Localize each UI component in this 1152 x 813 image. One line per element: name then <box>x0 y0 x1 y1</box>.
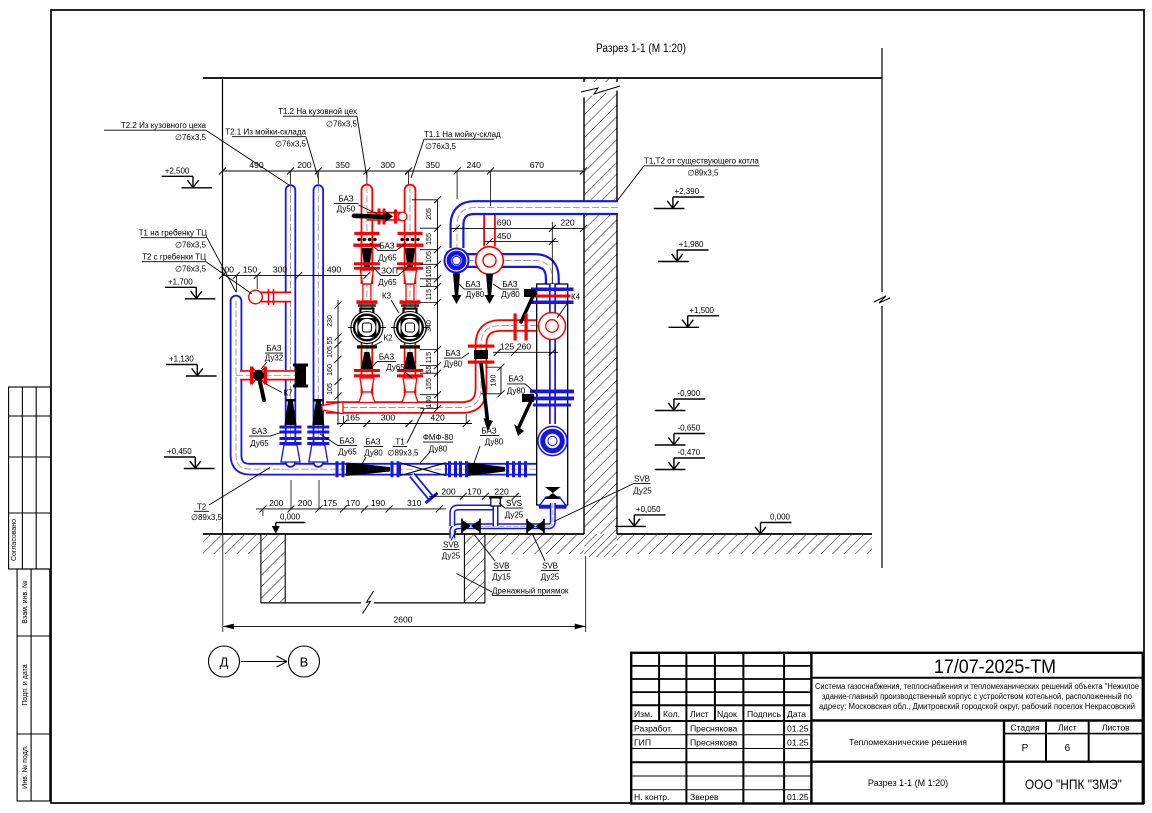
svg-text:БАЗ: БАЗ <box>379 242 394 251</box>
svg-text:Ду80: Ду80 <box>485 438 504 447</box>
svg-text:Ду65: Ду65 <box>338 448 357 457</box>
svg-text:Дата: Дата <box>787 709 806 719</box>
svg-text:Система газоснабжения, теплосн: Система газоснабжения, теплоснабжения и … <box>815 682 1140 691</box>
svg-text:К2: К2 <box>383 334 393 343</box>
svg-text:240: 240 <box>467 160 482 170</box>
svg-text:SVB: SVB <box>443 541 459 550</box>
svg-text:∅76x3,5: ∅76x3,5 <box>425 142 457 151</box>
svg-text:Подпись: Подпись <box>747 709 782 719</box>
svg-text:Ду25: Ду25 <box>633 487 652 496</box>
svg-text:+1,130: +1,130 <box>169 355 194 364</box>
svg-text:55: 55 <box>327 337 334 345</box>
svg-text:310: 310 <box>407 498 422 508</box>
svg-text:-0,900: -0,900 <box>678 389 701 398</box>
svg-text:Кол.: Кол. <box>663 709 680 719</box>
svg-text:Ду25: Ду25 <box>442 552 461 561</box>
svg-text:Изм.: Изм. <box>634 709 652 719</box>
svg-text:Ду80: Ду80 <box>364 449 383 458</box>
svg-text:165: 165 <box>346 413 361 423</box>
svg-text:Ду32: Ду32 <box>265 354 284 363</box>
svg-text:350: 350 <box>426 160 441 170</box>
svg-text:125: 125 <box>500 342 515 352</box>
svg-text:Тепломеханические решения: Тепломеханические решения <box>849 737 967 747</box>
svg-text:+2,500: +2,500 <box>165 166 190 175</box>
svg-text:∅76x3,5: ∅76x3,5 <box>326 120 358 129</box>
svg-text:БАЗ: БАЗ <box>508 375 523 384</box>
svg-text:200: 200 <box>441 487 456 497</box>
svg-text:Согласовано: Согласовано <box>11 519 18 561</box>
svg-text:∅89x3,5: ∅89x3,5 <box>388 449 420 458</box>
svg-text:-0,650: -0,650 <box>678 424 701 433</box>
svg-text:190: 190 <box>371 498 386 508</box>
svg-text:0,000: 0,000 <box>770 513 791 522</box>
svg-text:Р: Р <box>1022 743 1029 754</box>
svg-text:300: 300 <box>381 160 396 170</box>
svg-text:01.25: 01.25 <box>787 792 809 802</box>
svg-text:ГИП: ГИП <box>634 737 651 747</box>
svg-text:Ду80: Ду80 <box>507 387 526 396</box>
svg-text:155: 155 <box>426 233 433 245</box>
svg-text:+0,450: +0,450 <box>167 447 192 456</box>
svg-text:300: 300 <box>381 413 396 423</box>
svg-text:Н. контр.: Н. контр. <box>634 792 669 802</box>
svg-text:Подп. и дата: Подп. и дата <box>22 664 29 705</box>
svg-text:Ду65: Ду65 <box>386 363 405 372</box>
svg-text:200: 200 <box>269 498 284 508</box>
svg-text:105: 105 <box>327 346 334 358</box>
svg-text:+1,500: +1,500 <box>689 306 714 315</box>
svg-text:Ду80: Ду80 <box>429 445 448 454</box>
svg-text:SVB: SVB <box>542 562 558 571</box>
svg-text:Лист: Лист <box>690 709 709 719</box>
svg-text:0,000: 0,000 <box>280 512 301 521</box>
svg-text:170: 170 <box>467 487 482 497</box>
svg-text:Инв. № подл.: Инв. № подл. <box>22 745 29 789</box>
svg-text:01.25: 01.25 <box>787 737 809 747</box>
svg-text:Т1 на гребенку ТЦ: Т1 на гребенку ТЦ <box>139 229 207 238</box>
svg-text:Разработ.: Разработ. <box>634 724 673 734</box>
svg-text:Nдок: Nдок <box>717 709 737 719</box>
svg-text:Дренажный приямок: Дренажный приямок <box>492 587 569 596</box>
svg-text:55: 55 <box>426 279 433 287</box>
svg-text:300: 300 <box>273 265 288 275</box>
svg-text:Ду65: Ду65 <box>378 254 397 263</box>
svg-text:+1,980: +1,980 <box>679 240 704 249</box>
svg-text:490: 490 <box>327 265 342 275</box>
svg-text:105: 105 <box>426 251 433 263</box>
svg-text:155: 155 <box>426 378 433 390</box>
svg-text:105: 105 <box>426 266 433 278</box>
svg-text:ЗОП: ЗОП <box>381 267 398 276</box>
svg-text:Преснякова: Преснякова <box>690 737 738 747</box>
svg-text:170: 170 <box>346 498 361 508</box>
svg-text:∅76x3,5: ∅76x3,5 <box>175 241 207 250</box>
svg-text:SVS: SVS <box>506 499 522 508</box>
svg-text:ФМФ-80: ФМФ-80 <box>423 433 454 442</box>
svg-text:105: 105 <box>327 383 334 395</box>
svg-text:100: 100 <box>426 396 433 408</box>
svg-text:Ду25: Ду25 <box>505 511 524 520</box>
svg-text:Ду25: Ду25 <box>541 573 560 582</box>
svg-text:55: 55 <box>426 365 433 373</box>
svg-text:450: 450 <box>497 231 512 241</box>
svg-text:Зверев: Зверев <box>690 792 719 802</box>
svg-text:01.25: 01.25 <box>787 724 809 734</box>
svg-text:175: 175 <box>323 498 338 508</box>
svg-text:115: 115 <box>426 289 433 300</box>
svg-text:Взам. инв. №: Взам. инв. № <box>22 580 29 623</box>
svg-text:205: 205 <box>426 208 433 220</box>
svg-text:Ду80: Ду80 <box>466 290 485 299</box>
svg-text:200: 200 <box>298 498 313 508</box>
svg-text:670: 670 <box>530 160 545 170</box>
svg-text:490: 490 <box>249 160 264 170</box>
svg-text:Т2.1 Из мойки-склада: Т2.1 Из мойки-склада <box>225 128 306 137</box>
svg-text:здание-главный производственны: здание-главный производственный корпус с… <box>822 692 1133 701</box>
svg-text:420: 420 <box>430 413 445 423</box>
svg-text:БАЗ: БАЗ <box>465 280 480 289</box>
svg-text:Листов: Листов <box>1102 723 1130 733</box>
svg-text:Лист: Лист <box>1058 723 1077 733</box>
svg-text:Т2 с гребенки ТЦ: Т2 с гребенки ТЦ <box>142 253 206 262</box>
svg-text:∅76x3,5: ∅76x3,5 <box>175 265 207 274</box>
svg-text:∅76x3,5: ∅76x3,5 <box>275 140 307 149</box>
svg-text:Т2.2 Из кузовного цеха: Т2.2 Из кузовного цеха <box>121 121 207 130</box>
svg-text:∅89x3,5: ∅89x3,5 <box>191 513 223 522</box>
svg-text:+2,390: +2,390 <box>674 187 699 196</box>
svg-text:SVB: SVB <box>634 475 650 484</box>
svg-text:К4: К4 <box>571 293 581 302</box>
svg-text:115: 115 <box>426 352 433 363</box>
svg-text:адресу: Московская обл., Дмитр: адресу: Московская обл., Дмитровский гор… <box>819 702 1135 711</box>
svg-text:Стадия: Стадия <box>1010 723 1040 733</box>
svg-text:350: 350 <box>335 160 350 170</box>
svg-text:К3: К3 <box>382 292 392 301</box>
svg-text:200: 200 <box>297 160 312 170</box>
svg-text:Ду15: Ду15 <box>492 573 511 582</box>
svg-text:Ду80: Ду80 <box>444 360 463 369</box>
svg-text:К7: К7 <box>283 389 293 398</box>
svg-text:2600: 2600 <box>394 615 413 625</box>
svg-text:Т1: Т1 <box>395 438 405 447</box>
svg-text:Т1.2 На кузовной цех: Т1.2 На кузовной цех <box>278 107 357 116</box>
svg-text:SVB: SVB <box>493 562 509 571</box>
svg-text:∅89x3,5: ∅89x3,5 <box>688 169 720 178</box>
svg-text:690: 690 <box>497 218 512 228</box>
svg-text:БАЗ: БАЗ <box>252 427 267 436</box>
svg-text:БАЗ: БАЗ <box>379 353 394 362</box>
svg-text:ООО "НПК "ЗМЭ": ООО "НПК "ЗМЭ" <box>1025 776 1122 792</box>
svg-text:БАЗ: БАЗ <box>481 427 496 436</box>
svg-text:Разрез 1-1 (М 1:20): Разрез 1-1 (М 1:20) <box>868 778 948 788</box>
svg-text:Т2: Т2 <box>197 503 207 512</box>
svg-text:160: 160 <box>327 364 334 376</box>
svg-text:190: 190 <box>491 375 498 387</box>
svg-text:БАЗ: БАЗ <box>365 438 380 447</box>
svg-text:∅76x3,5: ∅76x3,5 <box>175 133 207 142</box>
svg-text:+0,050: +0,050 <box>636 505 661 514</box>
svg-text:БАЗ: БАЗ <box>266 344 281 353</box>
svg-text:6: 6 <box>1065 743 1071 754</box>
svg-text:Т1.1 На мойку-склад: Т1.1 На мойку-склад <box>424 130 501 139</box>
svg-text:220: 220 <box>494 487 509 497</box>
svg-text:БАЗ: БАЗ <box>339 437 354 446</box>
svg-text:Т1,Т2 от существующего котла: Т1,Т2 от существующего котла <box>644 157 759 166</box>
svg-text:17/07-2025-ТМ: 17/07-2025-ТМ <box>934 657 1056 678</box>
svg-text:260: 260 <box>517 342 532 352</box>
svg-text:Разрез 1-1 (М 1:20): Разрез 1-1 (М 1:20) <box>596 43 686 55</box>
svg-text:Д: Д <box>220 655 229 670</box>
svg-text:230: 230 <box>327 315 334 327</box>
svg-text:Ду50: Ду50 <box>337 205 356 214</box>
svg-text:БАЗ: БАЗ <box>502 280 517 289</box>
svg-text:220: 220 <box>560 218 575 228</box>
svg-text:Ду65: Ду65 <box>250 439 269 448</box>
svg-text:В: В <box>300 655 309 670</box>
svg-text:+1,700: +1,700 <box>168 277 193 286</box>
svg-text:Ду65: Ду65 <box>378 278 397 287</box>
svg-text:-0,470: -0,470 <box>678 448 701 457</box>
svg-text:340: 340 <box>426 320 433 332</box>
svg-text:Ду80: Ду80 <box>501 290 520 299</box>
svg-text:150: 150 <box>243 265 258 275</box>
svg-text:Преснякова: Преснякова <box>690 724 738 734</box>
svg-text:БАЗ: БАЗ <box>445 349 460 358</box>
svg-text:БАЗ: БАЗ <box>338 195 353 204</box>
